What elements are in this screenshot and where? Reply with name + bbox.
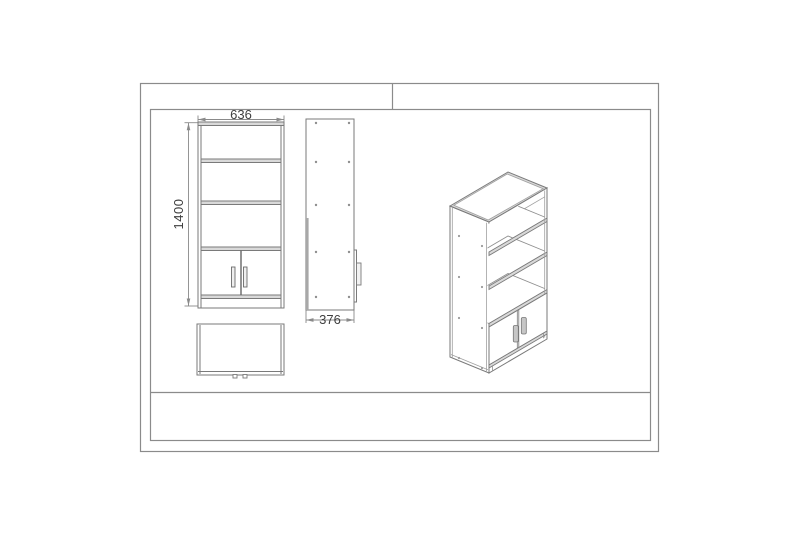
iso-right-door-handle	[521, 318, 526, 335]
iso-left-door-handle	[513, 326, 518, 343]
front-view-shelf-1	[201, 159, 281, 163]
top-view	[197, 324, 284, 378]
isometric-view	[450, 172, 547, 373]
side-view-door-handle	[357, 263, 362, 285]
furniture-technical-drawing: 636 1400 376	[0, 0, 800, 533]
dimension-height-arrow-bottom	[187, 299, 191, 307]
front-view-top-panel	[198, 122, 284, 126]
dimension-width-arrow-left	[198, 118, 206, 122]
dimension-depth-arrow-left	[306, 318, 314, 322]
technical-drawing-page: 636 1400 376	[0, 0, 800, 533]
dimension-depth: 376	[306, 311, 354, 328]
front-view-left-door-handle	[232, 267, 236, 287]
dimension-height: 1400	[171, 123, 198, 306]
dimension-height-arrow-top	[187, 123, 191, 131]
side-view	[306, 119, 361, 310]
dimension-height-label: 1400	[171, 199, 186, 230]
side-view-back-panel-edge	[306, 218, 309, 310]
front-view	[198, 122, 284, 308]
front-view-bottom-panel	[201, 295, 281, 299]
dimension-depth-arrow-right	[347, 318, 355, 322]
front-view-right-door-handle	[244, 267, 248, 287]
front-view-shelf-3	[201, 247, 281, 251]
dimension-width-label: 636	[230, 107, 252, 122]
side-view-outline	[306, 119, 354, 310]
top-view-outline	[197, 324, 284, 375]
iso-left-side-panel	[450, 206, 489, 373]
front-view-shelf-2	[201, 201, 281, 205]
top-view-right-handle-mark	[243, 375, 247, 379]
top-view-left-handle-mark	[233, 375, 237, 379]
dimension-width-arrow-right	[277, 118, 285, 122]
dimension-depth-label: 376	[319, 312, 341, 327]
